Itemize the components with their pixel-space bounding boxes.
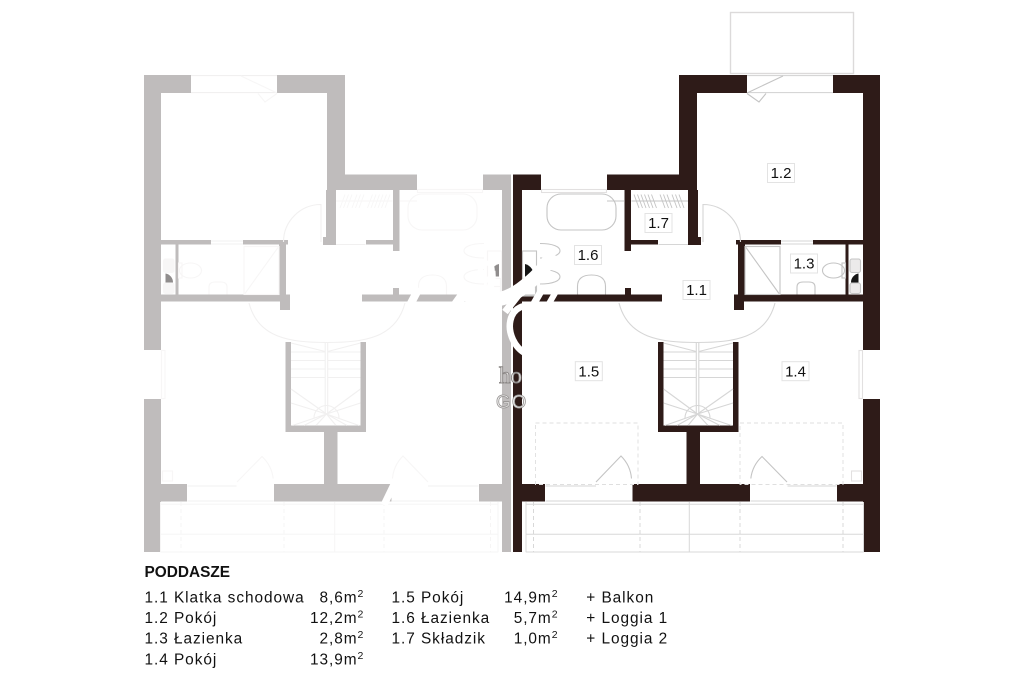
svg-text:GO: GO [496,391,528,412]
svg-text:+ Loggia 1: + Loggia 1 [586,610,668,627]
svg-text:1.4 Pokój: 1.4 Pokój [145,651,218,668]
svg-text:1.7: 1.7 [648,215,669,232]
svg-text:+ Loggia 2: + Loggia 2 [586,631,668,648]
svg-text:1.7 Składzik: 1.7 Składzik [392,631,486,648]
svg-text:13,9m2: 13,9m2 [310,650,364,669]
svg-text:ho: ho [499,363,522,388]
svg-text:1.3 Łazienka: 1.3 Łazienka [145,631,244,648]
svg-text:1.1: 1.1 [686,282,707,299]
svg-text:1.6 Łazienka: 1.6 Łazienka [392,610,491,627]
svg-text:1.5 Pokój: 1.5 Pokój [392,590,465,607]
svg-text:1.3: 1.3 [794,256,815,273]
svg-text:1.1 Klatka schodowa: 1.1 Klatka schodowa [145,590,305,607]
svg-text:1.5: 1.5 [578,363,599,380]
svg-text:12,2m2: 12,2m2 [310,609,364,628]
svg-text:1.4: 1.4 [785,363,806,380]
svg-text:+ Balkon: + Balkon [586,590,654,607]
svg-text:1.6: 1.6 [578,247,599,264]
svg-text:14,9m2: 14,9m2 [504,588,558,607]
svg-text:1.2: 1.2 [771,165,792,182]
svg-text:1.2 Pokój: 1.2 Pokój [145,610,218,627]
svg-text:PODDASZE: PODDASZE [145,564,231,581]
